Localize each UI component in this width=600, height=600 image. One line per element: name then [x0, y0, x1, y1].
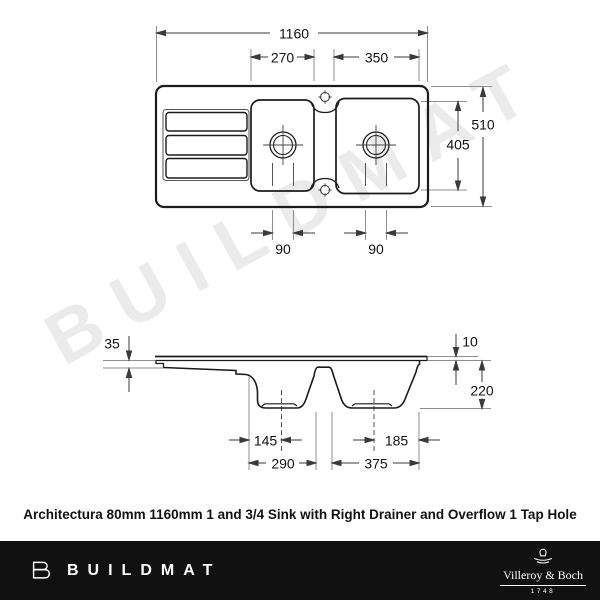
villeroy-boch-amphora-icon [528, 548, 558, 567]
footer-bar: BUILDMAT Villeroy & Boch 1748 [0, 541, 600, 600]
dim-large-bowl-width: 350 [365, 50, 389, 66]
villeroy-boch-logo: Villeroy & Boch 1748 [500, 548, 586, 595]
section-view: 35 10 220 145 185 290 375 [103, 334, 494, 472]
section-extension-lines [103, 357, 491, 471]
buildmat-brand: BUILDMAT [30, 559, 221, 582]
drain-right [356, 125, 396, 186]
buildmat-brand-text: BUILDMAT [67, 562, 221, 580]
drain-centre-lines [282, 390, 375, 452]
tap-hole [319, 91, 332, 104]
dim-drain-right-offset: 185 [385, 433, 409, 449]
buildmat-logo-icon [30, 559, 57, 582]
drainer-grooves [163, 110, 249, 181]
dim-large-bowl-inner-width: 375 [364, 456, 388, 472]
sink-technical-drawing: 1160 270 350 510 405 90 90 [0, 0, 600, 545]
dim-bowl-depth: 405 [446, 137, 470, 153]
page: BUILDMAT [0, 0, 600, 600]
large-bowl-top-view [336, 99, 419, 194]
small-bowl-top-view [251, 100, 314, 191]
dim-drain-right: 90 [368, 241, 384, 257]
drain-left [263, 125, 303, 186]
top-view: 1160 270 350 510 405 90 90 [156, 26, 495, 258]
dim-small-bowl-width: 270 [271, 50, 295, 66]
dim-edge-thickness: 10 [462, 334, 478, 350]
dim-drain-left: 90 [275, 241, 291, 257]
villeroy-boch-name: Villeroy & Boch [500, 567, 586, 586]
dim-rim-thickness: 35 [104, 336, 120, 352]
dim-small-bowl-inner-width: 290 [271, 456, 295, 472]
top-view-dimension-lines [157, 30, 486, 235]
overflow-hole [319, 184, 332, 197]
sink-profile [155, 357, 427, 409]
villeroy-boch-year: 1748 [531, 588, 555, 595]
bowl-bridge [311, 102, 339, 188]
dim-drain-left-offset: 145 [254, 433, 278, 449]
dim-bowl-inner-depth: 220 [470, 383, 494, 399]
product-caption: Architectura 80mm 1160mm 1 and 3/4 Sink … [0, 507, 600, 522]
dim-overall-depth: 510 [471, 117, 495, 133]
dim-overall-width: 1160 [279, 26, 309, 42]
